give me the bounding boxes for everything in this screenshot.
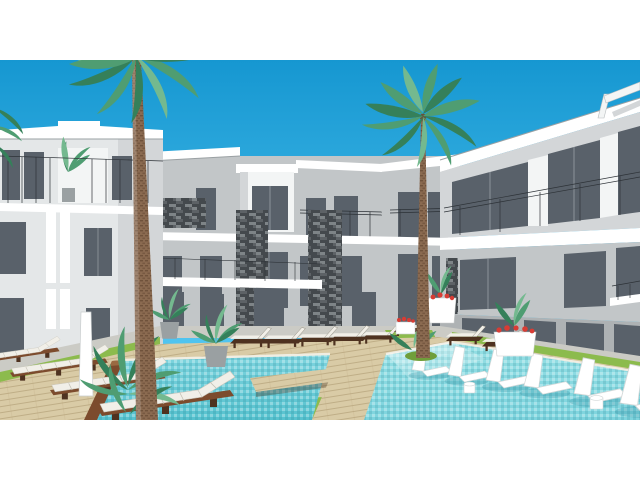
screenshot-page	[0, 0, 640, 480]
stone-column	[308, 210, 342, 328]
architectural-rendering	[0, 60, 640, 420]
